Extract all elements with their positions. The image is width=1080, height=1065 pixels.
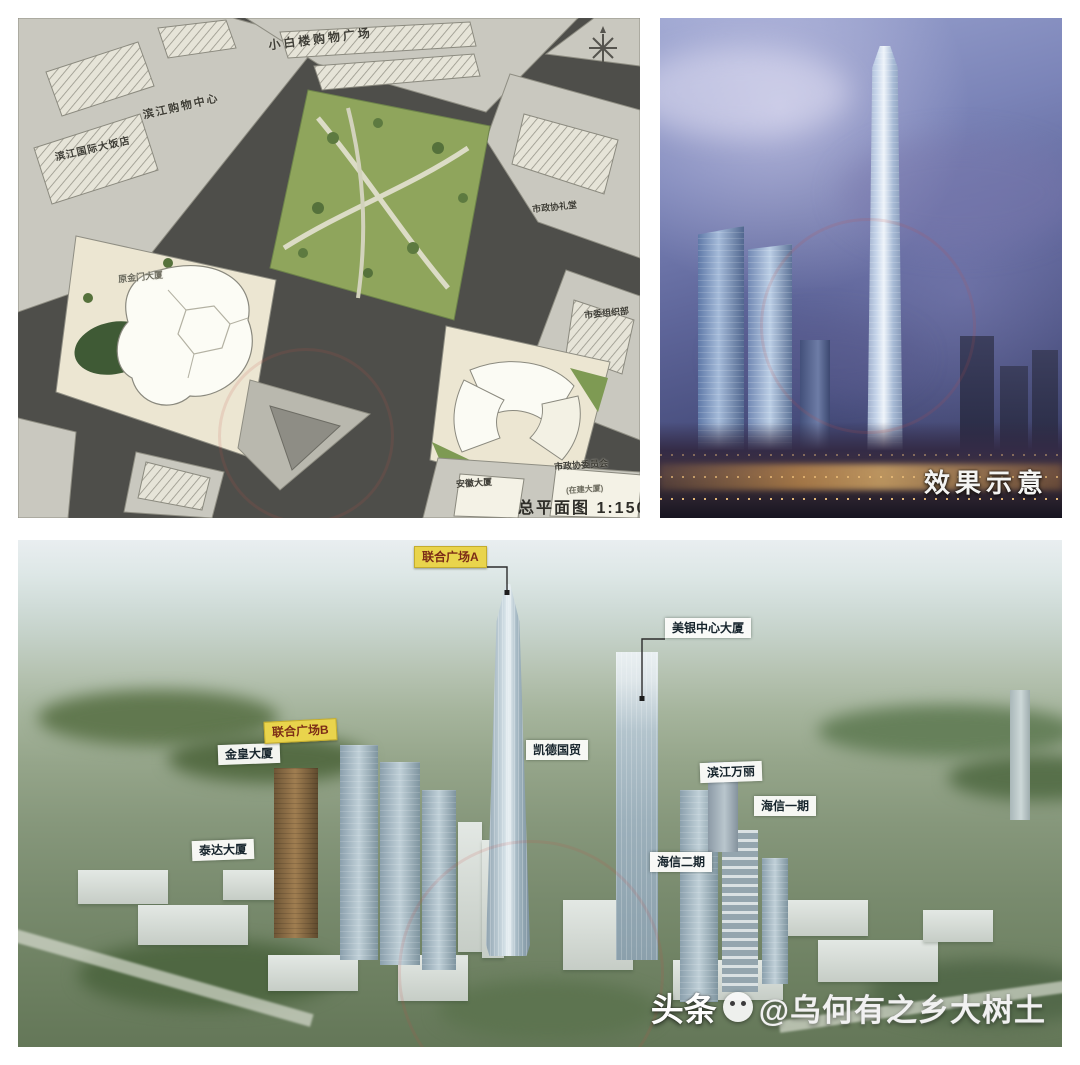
label-teda-building: 泰达大厦: [192, 839, 255, 861]
composite-image: 小白楼购物广场 滨江购物中心 滨江国际大饭店 原金门大厦 市政协礼堂 市委组织部…: [0, 0, 1080, 1065]
tower-render-panel: 效果示意: [660, 18, 1062, 518]
banded-tower-hisense: [722, 830, 758, 992]
aerial-render-panel: 联合广场A 美银中心大厦 金皇大厦 联合广场B 凯德国贸 滨江万丽 海信一期 泰…: [18, 540, 1062, 1047]
label-union-plaza-a: 联合广场A: [414, 546, 487, 568]
plan-caption-scale: 总平面图 1:1500: [518, 494, 640, 518]
low-building: [138, 905, 248, 945]
label-capitaland-guomao: 凯德国贸: [526, 740, 588, 760]
watermark-handle: @乌何有之乡大树土: [759, 985, 1046, 1030]
street-lights: [660, 454, 1062, 456]
watermark-stamp: [218, 348, 394, 518]
cloud: [660, 48, 850, 138]
plan-label-anhui-building: 安徽大厦: [456, 475, 493, 490]
tree-clump: [948, 755, 1062, 801]
watermark-stamp: [760, 218, 976, 434]
toutiao-face-icon: [723, 992, 753, 1022]
low-building: [778, 900, 868, 936]
label-binjiang-renaissance: 滨江万丽: [700, 761, 763, 783]
watermark-brand: 头条: [651, 983, 717, 1031]
site-plan-panel: 小白楼购物广场 滨江购物中心 滨江国际大饭店 原金门大厦 市政协礼堂 市委组织部…: [18, 18, 640, 518]
low-building: [268, 955, 358, 991]
label-hisense-phase2: 海信二期: [650, 852, 712, 872]
low-building: [818, 940, 938, 982]
low-building: [923, 910, 993, 942]
label-union-plaza-b: 联合广场B: [263, 718, 337, 744]
label-jinhuang: 金皇大厦: [218, 743, 281, 765]
watermark: 头条 @乌何有之乡大树土: [651, 983, 1046, 1031]
label-hisense-phase1: 海信一期: [754, 796, 816, 816]
render-caption: 效果示意: [924, 463, 1048, 500]
low-building: [78, 870, 168, 904]
gold-tower-jinhuang: [274, 768, 318, 938]
glass-tower: [340, 745, 378, 960]
glass-tower: [762, 858, 788, 984]
label-boa-center: 美银中心大厦: [665, 618, 751, 638]
distant-tower: [1010, 690, 1030, 820]
